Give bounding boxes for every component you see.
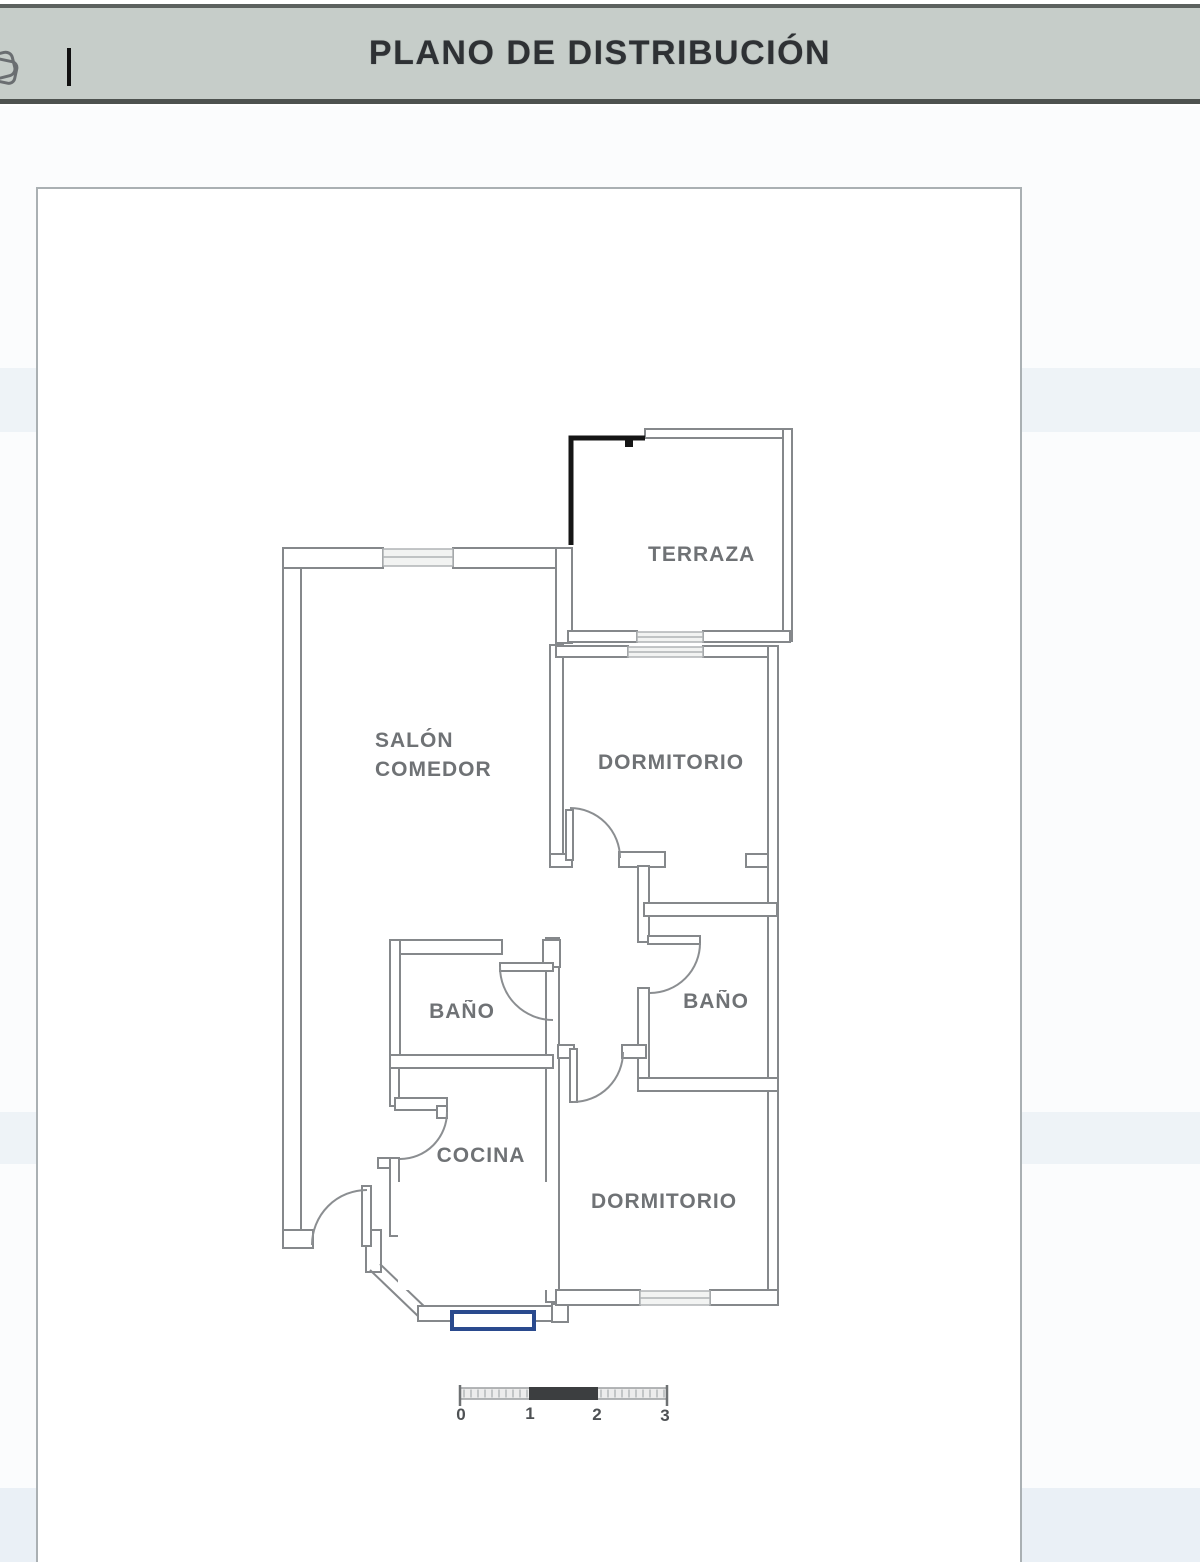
room-label-cocina: COCINA [437,1144,526,1167]
window-highlight-blue [452,1312,534,1329]
floor-plan-svg: TERRAZA DORMITORIO SALÓN COMEDOR BAÑO BA… [0,0,1200,1562]
room-label-dormitorio-top: DORMITORIO [598,751,744,774]
redaction-patch-kitchen [398,1182,553,1290]
redaction-patch-terraza [574,441,642,544]
scanned-floor-plan-page: { "header": { "title": "PLANO DE DISTRIB… [0,0,1200,1562]
scale-label-1: 1 [525,1404,534,1423]
scale-label-2: 2 [592,1405,601,1424]
room-label-bano-right: BAÑO [683,990,749,1013]
cursor-mark [67,48,71,86]
scale-label-3: 3 [660,1406,669,1425]
room-label-salon-line1: SALÓN [375,728,454,752]
scale-bar: 0 1 2 3 [456,1385,669,1425]
room-label-salon-line2: COMEDOR [375,758,492,781]
room-label-dormitorio-bottom: DORMITORIO [591,1190,737,1213]
scale-bar-dark-segment [529,1387,598,1400]
room-label-terraza: TERRAZA [648,543,755,566]
scale-label-0: 0 [456,1405,465,1424]
page-corner-icon [0,51,18,85]
room-label-bano-left: BAÑO [429,1000,495,1023]
